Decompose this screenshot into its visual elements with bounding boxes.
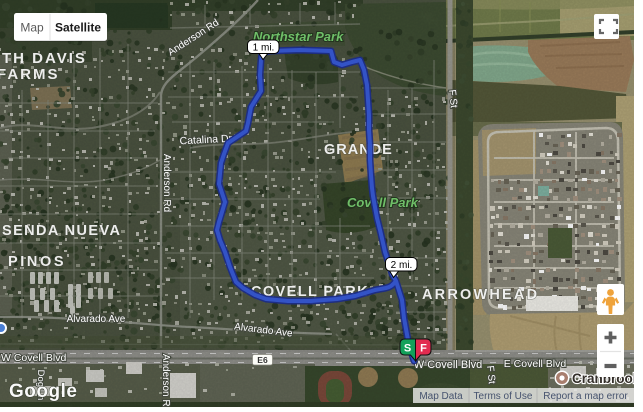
svg-text:SENDA NUEVA: SENDA NUEVA	[2, 223, 121, 239]
svg-text:W Covell Blvd: W Covell Blvd	[1, 352, 67, 364]
svg-text:F St: F St	[446, 89, 459, 109]
svg-text:F St: F St	[484, 365, 497, 385]
svg-text:S: S	[404, 343, 411, 355]
svg-text:Anderson Rd: Anderson Rd	[160, 354, 171, 407]
svg-text:Map: Map	[20, 21, 44, 35]
svg-text:E6: E6	[257, 355, 268, 365]
svg-text:ARROWHEAD: ARROWHEAD	[422, 287, 539, 303]
svg-text:2 mi.: 2 mi.	[391, 260, 413, 271]
svg-text:W Covell Blvd: W Covell Blvd	[414, 359, 482, 371]
svg-text:F: F	[420, 343, 427, 355]
svg-text:Map Data: Map Data	[419, 391, 463, 402]
svg-text:1 mi.: 1 mi.	[253, 43, 275, 54]
svg-text:FARMS: FARMS	[0, 66, 60, 83]
svg-text:Google: Google	[9, 381, 77, 402]
svg-text:PINOS: PINOS	[8, 254, 66, 270]
svg-text:Report a map error: Report a map error	[543, 391, 628, 402]
svg-text:Alvarado Ave: Alvarado Ave	[67, 314, 126, 325]
svg-text:E Covell Blvd: E Covell Blvd	[504, 358, 567, 370]
svg-text:Anderson Rd: Anderson Rd	[161, 154, 172, 212]
svg-text:GRANDE: GRANDE	[324, 142, 393, 158]
svg-text:Terms of Use: Terms of Use	[474, 391, 533, 402]
svg-text:TH DAVIS: TH DAVIS	[2, 50, 87, 67]
svg-text:Covell Park: Covell Park	[347, 195, 419, 210]
svg-text:Satellite: Satellite	[55, 21, 101, 35]
